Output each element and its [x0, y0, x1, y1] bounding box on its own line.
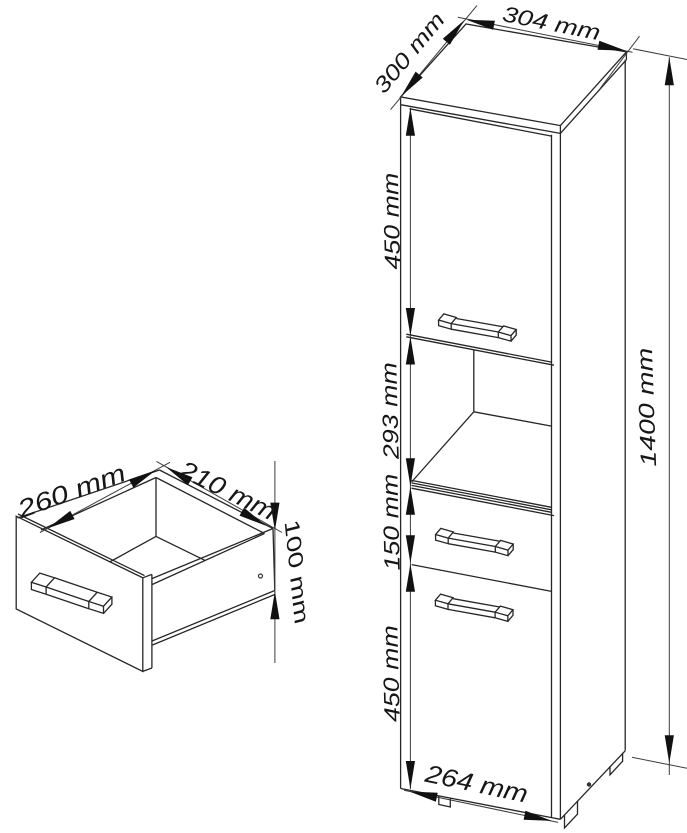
- svg-text:450 mm: 450 mm: [378, 625, 405, 722]
- svg-text:210 mm: 210 mm: [174, 455, 281, 526]
- svg-text:450 mm: 450 mm: [379, 172, 406, 269]
- svg-text:100 mm: 100 mm: [280, 514, 312, 629]
- svg-text:150 mm: 150 mm: [378, 473, 405, 570]
- svg-text:293 mm: 293 mm: [377, 362, 404, 461]
- svg-text:1400 mm: 1400 mm: [633, 347, 661, 467]
